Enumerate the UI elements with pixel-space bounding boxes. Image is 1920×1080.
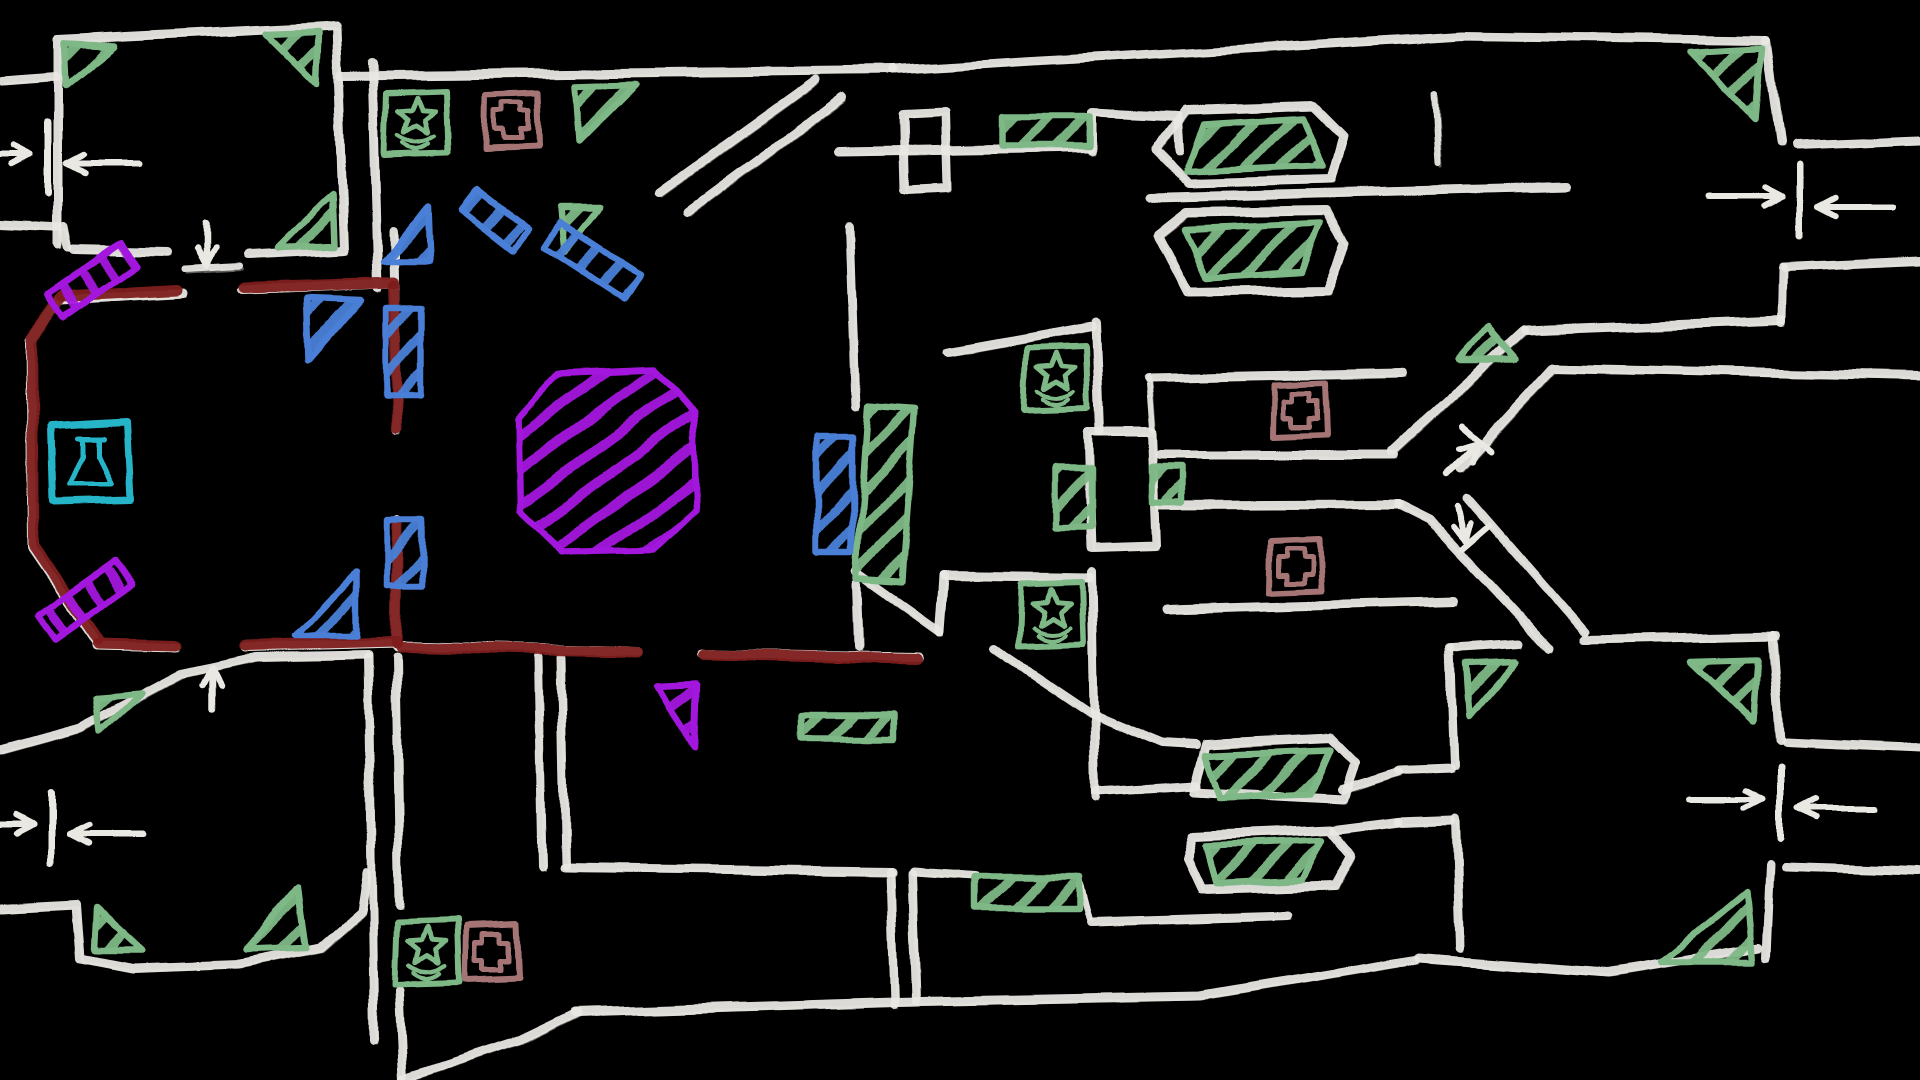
entry-arrow-up-icon [204,668,222,710]
cover-bar-green [802,716,894,740]
objective-line [98,644,176,646]
objective-line [400,648,638,652]
one-way-arrow-down-icon [1453,506,1471,542]
choke-marker-left-top-icon [0,122,140,194]
corner-cover-green [1690,48,1762,120]
entry-arrow-down-icon [198,224,216,266]
landmark-octagon-purple [518,370,696,552]
medkit-pickup-icon [1273,383,1327,437]
wall-echo [1163,507,1399,508]
wall-echo [1471,501,1588,635]
objective-line [246,642,396,646]
star-pickup-icon [1020,582,1084,646]
star-pickup-icon [384,91,448,155]
door-slab-green [856,405,914,582]
wall-echo [951,329,1095,355]
wall [1088,432,1156,548]
cover-triangle-purple [658,684,696,748]
objective-line [702,654,918,658]
wall [0,656,368,750]
cover-triangle-blue [306,298,360,360]
medkit-pickup-icon [1269,539,1323,593]
objective-outline [32,283,918,658]
medkit-pickup-icon [465,925,519,979]
wall-echo [859,587,861,649]
cover-bar-green [1003,117,1090,146]
cover-triangle-blue [296,572,356,636]
wall-echo [1401,823,1455,825]
choke-marker-left-bottom-icon [0,792,144,864]
cover-rect-blue [387,520,423,585]
star-pickup-icon [1024,346,1088,410]
wall [944,576,1090,578]
cover-rect-green [1055,468,1092,527]
wall-echo [1401,771,1453,773]
corner-cover-green [575,84,637,142]
choke-marker-right-top-icon [1708,165,1892,237]
wall [1766,40,1780,143]
cover-band-blue [544,223,640,300]
platform-pad-green [1188,118,1322,172]
cover-rect-blue [386,308,422,396]
corner-cover-green [94,908,142,950]
wall [1398,768,1450,770]
corner-cover-green [1662,892,1752,962]
platform-pad-green [1185,222,1320,278]
corner-cover-green [266,32,318,84]
platform-pad-green [1205,840,1322,884]
cover-rect-blue [817,437,852,552]
cover-bar-green [975,877,1080,908]
level-map[interactable] [0,0,1920,1080]
star-pickup-icon [395,920,459,984]
wall [404,1012,578,1078]
map-canvas [0,0,1920,1080]
cover-rect-green [1152,467,1184,502]
corner-cover-green [246,888,306,950]
wall [1460,368,1920,468]
wall [1160,504,1396,505]
corner-cover-green [64,44,116,86]
objective-line [246,283,394,288]
choke-markers [0,122,1892,864]
wall-echo [3,875,369,971]
corner-cover-green [1692,660,1758,722]
pickup-icons [51,91,1327,984]
corner-cover-green [1466,662,1516,716]
platform-pad-green [1205,750,1330,798]
cover-shapes [38,32,1762,962]
choke-marker-right-bottom-icon [1689,767,1873,839]
wall [1782,268,1783,322]
cover-band-blue [462,189,528,249]
corner-cover-green [96,694,142,732]
medkit-pickup-icon [485,93,539,147]
wall [1398,820,1452,822]
corner-cover-green [278,194,334,248]
flask-pickup-icon [51,422,131,502]
